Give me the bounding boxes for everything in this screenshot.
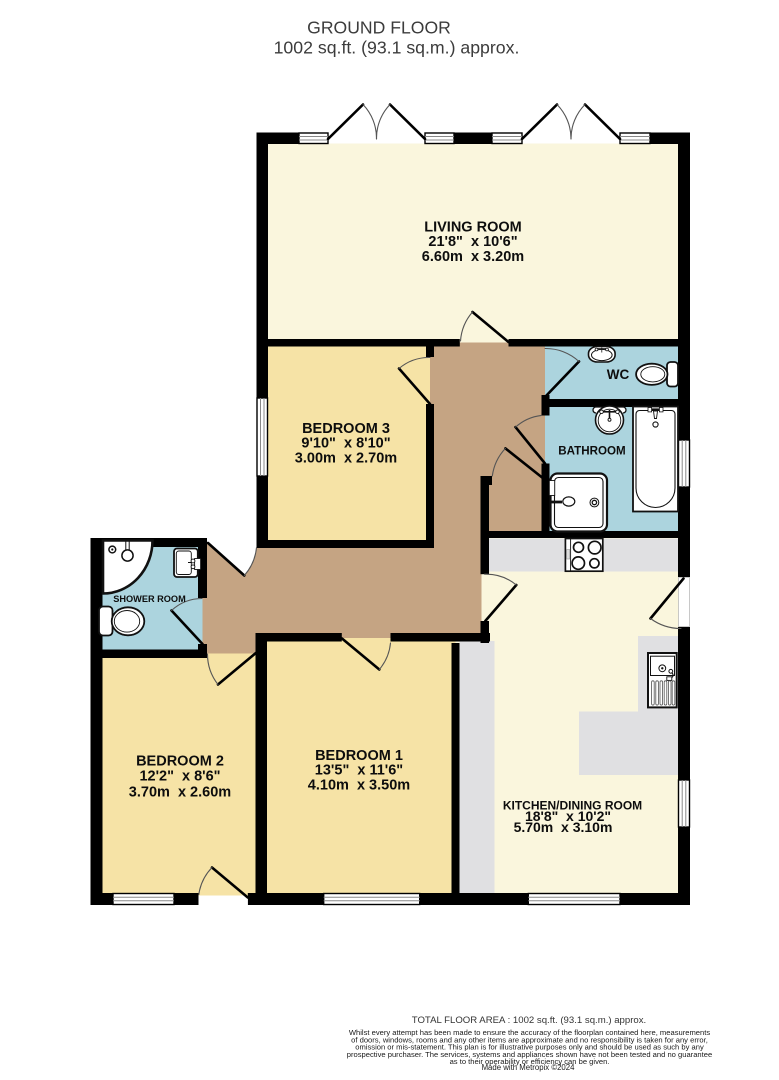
svg-text:GROUND FLOOR: GROUND FLOOR bbox=[307, 18, 451, 38]
svg-text:BATHROOM: BATHROOM bbox=[558, 445, 625, 458]
svg-text:6.60m x 3.20m: 6.60m x 3.20m bbox=[422, 249, 524, 265]
svg-text:BEDROOM 2: BEDROOM 2 bbox=[136, 754, 224, 770]
svg-text:21'8" x 10'6": 21'8" x 10'6" bbox=[428, 234, 517, 250]
svg-text:12'2" x 8'6": 12'2" x 8'6" bbox=[139, 769, 220, 785]
svg-text:WC: WC bbox=[607, 367, 630, 382]
svg-text:5.70m x 3.10m: 5.70m x 3.10m bbox=[514, 819, 613, 835]
svg-text:SHOWER ROOM: SHOWER ROOM bbox=[113, 594, 186, 604]
svg-text:4.10m x 3.50m: 4.10m x 3.50m bbox=[308, 778, 410, 794]
svg-text:Made with Metropix ©2024: Made with Metropix ©2024 bbox=[482, 1063, 576, 1072]
svg-text:1002 sq.ft. (93.1 sq.m.) appro: 1002 sq.ft. (93.1 sq.m.) approx. bbox=[274, 38, 520, 58]
svg-text:3.70m x 2.60m: 3.70m x 2.60m bbox=[129, 785, 231, 801]
svg-text:3.00m x 2.70m: 3.00m x 2.70m bbox=[295, 451, 397, 467]
svg-text:TOTAL FLOOR AREA : 1002 sq.ft.: TOTAL FLOOR AREA : 1002 sq.ft. (93.1 sq.… bbox=[412, 1015, 646, 1026]
svg-text:13'5" x 11'6": 13'5" x 11'6" bbox=[315, 763, 403, 779]
svg-text:9'10" x 8'10": 9'10" x 8'10" bbox=[301, 436, 390, 452]
